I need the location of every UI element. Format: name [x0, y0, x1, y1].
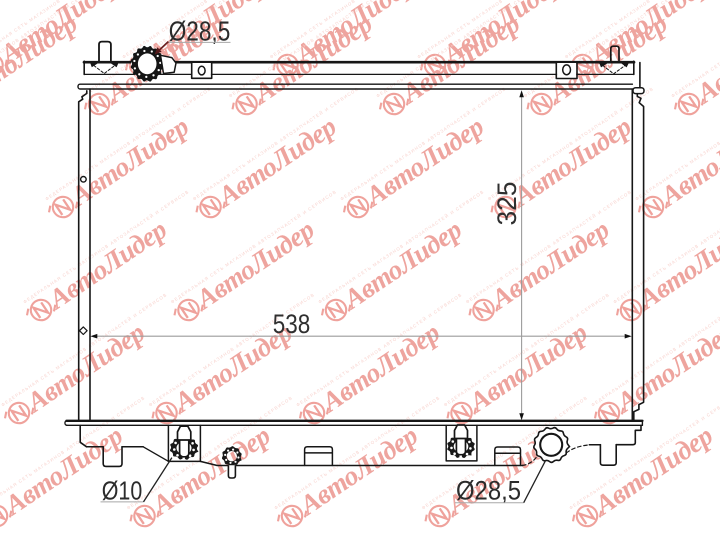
svg-text:325: 325 — [492, 182, 522, 226]
svg-text:Ø28,5: Ø28,5 — [456, 475, 521, 505]
svg-text:538: 538 — [273, 309, 311, 339]
svg-text:Ø10: Ø10 — [102, 475, 143, 505]
